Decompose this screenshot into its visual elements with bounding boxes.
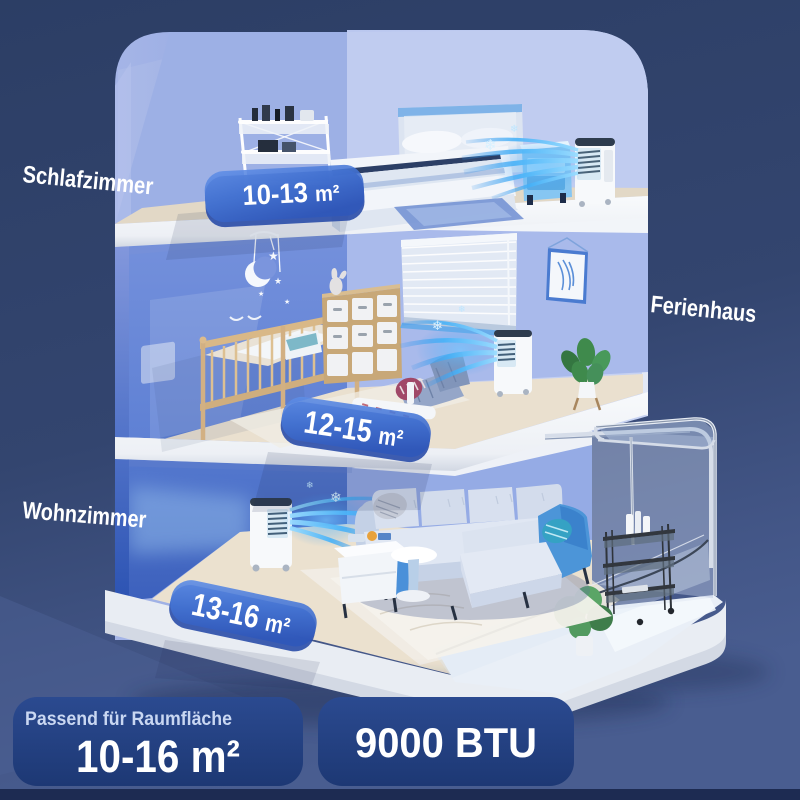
svg-text:10-16 m²: 10-16 m²: [76, 731, 240, 782]
svg-text:❄: ❄: [510, 124, 518, 135]
svg-text:❄: ❄: [484, 137, 497, 154]
svg-text:9000 BTU: 9000 BTU: [355, 719, 537, 766]
svg-text:❄: ❄: [458, 304, 466, 314]
svg-text:Passend für Raumfläche: Passend für Raumfläche: [25, 709, 232, 730]
svg-text:10-13 m²: 10-13 m²: [242, 175, 340, 211]
svg-text:★: ★: [284, 298, 290, 306]
svg-text:★: ★: [274, 276, 282, 286]
svg-text:❄: ❄: [432, 318, 443, 333]
svg-text:★: ★: [258, 290, 264, 298]
